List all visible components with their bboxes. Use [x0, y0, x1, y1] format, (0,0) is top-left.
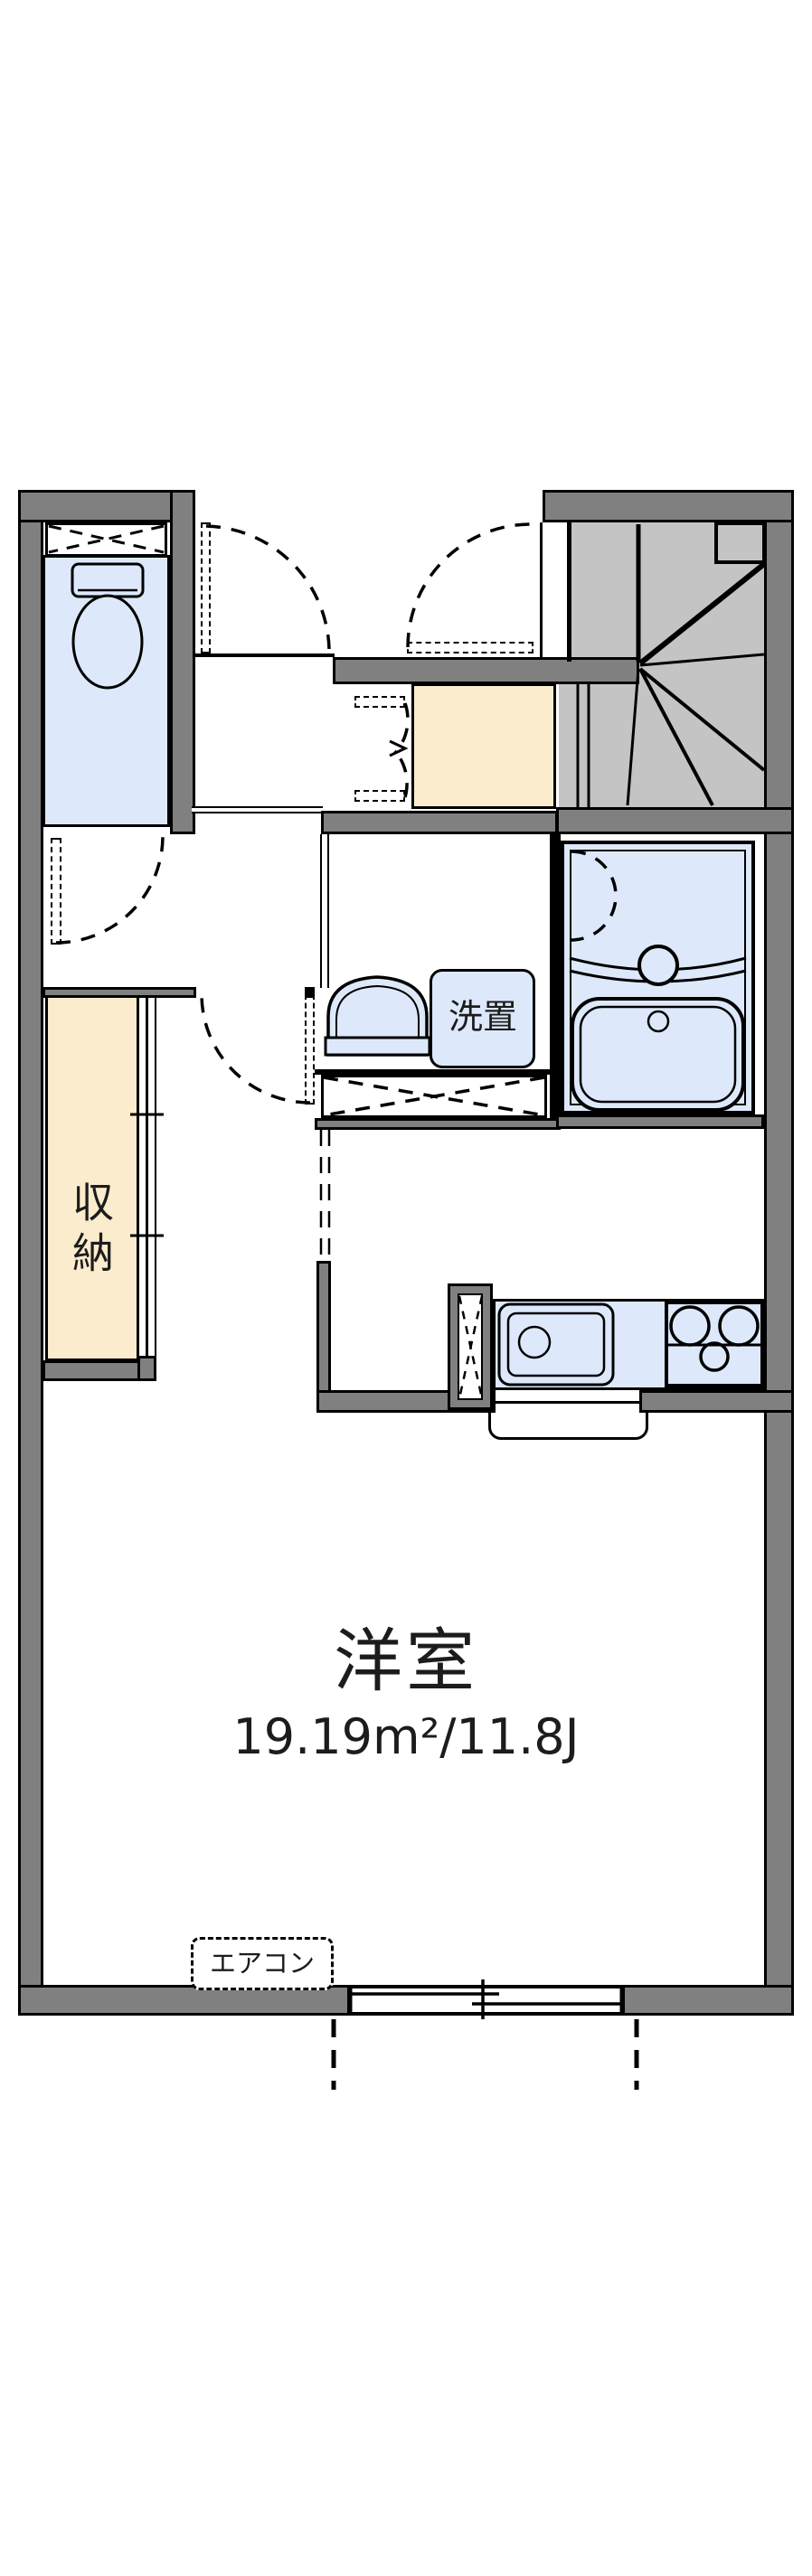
front-door-arc	[408, 524, 531, 647]
toilet-window-cross-icon	[49, 526, 164, 552]
toilet-icon	[72, 564, 143, 688]
balcony-boundary-lines	[334, 2019, 637, 2090]
western-room-label: 洋室	[230, 1623, 582, 1699]
floorplan-linework	[0, 0, 812, 2576]
window-panes-icon	[350, 1979, 622, 2019]
kitchen-opening-dashes	[321, 1130, 329, 1259]
washroom-door-arc	[202, 994, 310, 1103]
stair-steps-icon	[578, 523, 764, 807]
kitchen-sink-icon	[499, 1304, 613, 1385]
bathtub-icon	[570, 946, 746, 1110]
closet-door-ticks	[130, 1114, 164, 1236]
genkan-door-arc-bottom	[395, 751, 407, 797]
toilet-door-arc	[206, 526, 329, 649]
storage-label: 収納	[63, 1123, 118, 1340]
western-room-area-label: 19.19m²/11.8J	[184, 1710, 628, 1763]
washer-place-label: 洗置	[431, 999, 534, 1037]
aircon-label: エアコン	[191, 1937, 334, 1990]
bathroom-door-arc	[571, 851, 616, 940]
genkan-door-arrow-icon	[390, 741, 405, 756]
floorplan-page: { "floorplan": { "type": "apartment-floo…	[0, 0, 812, 2576]
washbasin-icon	[326, 977, 430, 1055]
pipe-shaft-cross-icon	[459, 1296, 482, 1398]
hallway-door-arc	[56, 836, 163, 943]
cabinet-cross-icon	[324, 1077, 544, 1115]
stove-icon	[666, 1302, 762, 1386]
